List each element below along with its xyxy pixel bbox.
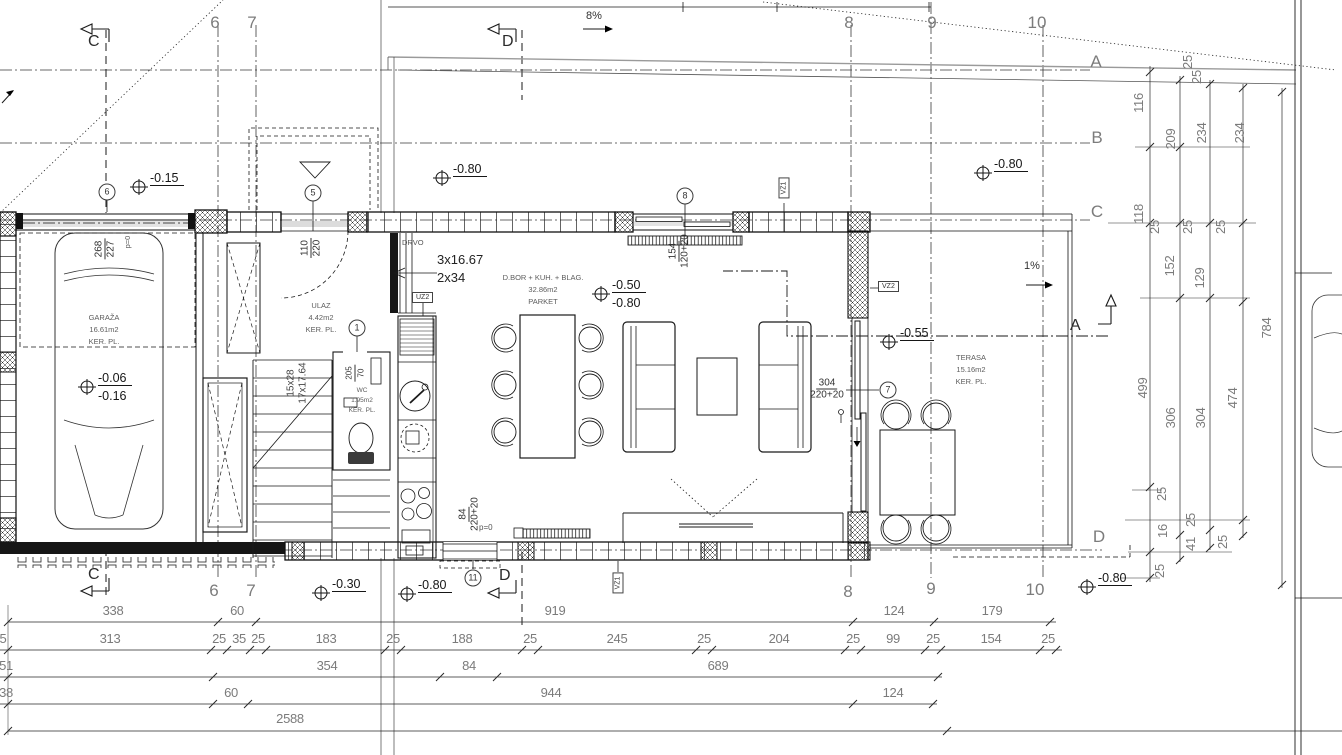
position-marker: 8	[677, 188, 694, 205]
window-dim-height: 120+20	[680, 234, 691, 268]
dimension-lines	[0, 66, 1342, 735]
room-area: 4.42m2	[306, 312, 337, 324]
room-area: 32.86m2	[503, 284, 584, 296]
p0-label-garage: p=0	[124, 236, 132, 249]
dimension-label-rotated: 304	[1194, 408, 1208, 429]
dimension-label: 25	[697, 632, 711, 646]
room-floor: KER. PL.	[306, 324, 337, 336]
tag-vz1: VZ1	[779, 178, 790, 199]
dimension-label: 35	[232, 632, 246, 646]
grid-axis-label: D	[1093, 528, 1105, 546]
room-label-garage: GARAŽA 16.61m2 KER. PL.	[89, 312, 120, 348]
door-dim-garage: 268 227	[94, 239, 117, 260]
dimension-label: 60	[230, 604, 244, 618]
door-dim-entry-width: 110	[300, 238, 312, 258]
grid-axis-label: 8	[843, 583, 852, 601]
grid-axis-label: 6	[209, 582, 218, 600]
section-marker-c-bottom: C	[88, 566, 100, 583]
dimension-label: 5	[0, 632, 6, 646]
p0-label-kitchen: p=0	[479, 524, 493, 532]
grid-axis-label: 8	[844, 14, 853, 32]
dimension-label: 99	[886, 632, 900, 646]
kitchen-opening-width: 84	[458, 506, 470, 521]
grid-axis-label: B	[1091, 129, 1102, 147]
dimension-label-rotated: 25	[1181, 220, 1195, 234]
dimension-label: 154	[981, 632, 1002, 646]
dimension-label-rotated: 209	[1164, 129, 1178, 150]
dimension-label: 689	[708, 659, 729, 673]
dimension-label: 25	[926, 632, 940, 646]
dimension-label-rotated: 129	[1193, 268, 1207, 289]
dimension-label: 179	[982, 604, 1003, 618]
room-floor: PARKET	[503, 296, 584, 308]
dimension-label: 25	[1041, 632, 1055, 646]
stair-note-risers: 3x16.67	[437, 253, 483, 267]
dimension-label: 2588	[276, 712, 304, 726]
level-value: -0.15	[150, 171, 184, 186]
dimension-label-rotated: 784	[1260, 318, 1274, 339]
tag-vz2: VZ2	[878, 281, 899, 292]
tag-vz1-bottom: VZ1	[613, 573, 624, 594]
dimension-label: 25	[846, 632, 860, 646]
dimension-label: 183	[316, 632, 337, 646]
dimension-label-rotated: 25	[1153, 564, 1167, 578]
grid-axis-label: 7	[246, 582, 255, 600]
dimension-label: 313	[100, 632, 121, 646]
dimension-label-rotated: 16	[1156, 524, 1170, 538]
section-marker-c-top: C	[88, 33, 100, 50]
grid-axis-label: 7	[247, 14, 256, 32]
room-name: WC	[349, 386, 376, 396]
level-value: -0.80	[453, 162, 487, 177]
door-dim-garage-height: 227	[106, 241, 117, 258]
room-floor: KER. PL.	[89, 336, 120, 348]
stair-flight-dim: 15x28	[286, 369, 297, 396]
dimension-label: 204	[769, 632, 790, 646]
material-label-wood: DRVO	[402, 239, 424, 247]
position-marker: 5	[305, 185, 322, 202]
section-marker-a: A	[1070, 317, 1081, 334]
dimension-label-rotated: 499	[1136, 378, 1150, 399]
door-dim-wc-width: 205	[344, 364, 356, 381]
room-label-entry: ULAZ 4.42m2 KER. PL.	[306, 300, 337, 336]
slider-dim: 304 220+20	[810, 378, 844, 401]
dimension-label-rotated: 234	[1233, 123, 1247, 144]
room-label-terrace: TERASA 15.16m2 KER. PL.	[956, 352, 987, 388]
level-value: -0.80	[612, 296, 641, 310]
interior	[203, 231, 436, 558]
level-value: -0.16	[98, 389, 127, 403]
slider-dim-width: 304	[817, 378, 838, 390]
grid-axis-label: 10	[1028, 14, 1047, 32]
room-label-wc: WC 1.95m2 KER. PL.	[349, 386, 376, 416]
room-area: 1.95m2	[349, 396, 376, 406]
dimension-label: 84	[462, 659, 476, 673]
door-dim-wc-height: 70	[356, 369, 367, 378]
grid-axis-label: 10	[1026, 581, 1045, 599]
dimension-label-rotated: 474	[1226, 388, 1240, 409]
dimension-label: 38	[0, 686, 13, 700]
dimension-label-rotated: 306	[1164, 408, 1178, 429]
level-value: -0.80	[418, 578, 452, 593]
room-area: 15.16m2	[956, 364, 987, 376]
dimension-label-rotated: 152	[1163, 256, 1177, 277]
dimension-label: 944	[541, 686, 562, 700]
dimension-label: 188	[452, 632, 473, 646]
kitchen-opening-height: 220+20	[470, 497, 481, 531]
floor-plan-sheet: C C D D A 8% 1% 3x16.67 2x34 15x28 17x17…	[0, 0, 1342, 755]
grid-axis-label: 9	[927, 14, 936, 32]
leaders	[107, 200, 879, 572]
position-marker: 7	[880, 382, 897, 399]
dimension-label-rotated: 118	[1132, 204, 1146, 224]
dimension-label: 245	[607, 632, 628, 646]
dimension-label: 25	[523, 632, 537, 646]
door-dim-wc: 205 70	[344, 364, 367, 381]
position-marker: 6	[99, 184, 116, 201]
furniture	[20, 128, 955, 544]
grid-axis-label: 6	[210, 14, 219, 32]
walls	[0, 210, 1130, 568]
stair-note-treads: 2x34	[437, 271, 465, 285]
level-value: -0.50	[612, 278, 646, 293]
section-lines	[81, 24, 1116, 625]
stair-flight-dim2: 17x17.64	[298, 362, 309, 403]
level-value: -0.55	[900, 326, 934, 341]
dimension-label-rotated: 25	[1216, 535, 1230, 549]
level-value: -0.06	[98, 371, 132, 386]
grid-axis-label: A	[1090, 53, 1101, 71]
window-dim-width: 154	[668, 241, 680, 262]
room-name: D.BOR + KUH. + BLAG.	[503, 272, 584, 284]
level-value: -0.30	[332, 577, 366, 592]
room-label-living: D.BOR + KUH. + BLAG. 32.86m2 PARKET	[503, 272, 584, 308]
dimension-label: 51	[0, 659, 13, 673]
level-value: -0.80	[994, 157, 1028, 172]
dimension-label: 354	[317, 659, 338, 673]
door-dim-entry-height: 220	[312, 240, 323, 257]
tag-uz2: UZ2	[412, 292, 433, 303]
room-name: ULAZ	[306, 300, 337, 312]
room-floor: KER. PL.	[349, 406, 376, 416]
section-marker-d-bottom: D	[499, 567, 511, 584]
door-dim-entry: 110 220	[300, 238, 323, 258]
room-name: TERASA	[956, 352, 987, 364]
grid-axis-label: 9	[926, 580, 935, 598]
position-marker: 1	[349, 320, 366, 337]
dimension-label: 25	[212, 632, 226, 646]
dimension-label: 124	[883, 686, 904, 700]
dimension-label: 338	[103, 604, 124, 618]
room-name: GARAŽA	[89, 312, 120, 324]
section-marker-d-top: D	[502, 33, 514, 50]
kitchen-opening-dim: 84 220+20	[458, 497, 481, 531]
dimension-label-rotated: 41	[1184, 537, 1198, 551]
dimension-label: 60	[224, 686, 238, 700]
dimension-label-rotated: 25	[1181, 55, 1195, 69]
dimension-label-rotated: 25	[1190, 70, 1204, 84]
room-area: 16.61m2	[89, 324, 120, 336]
dimension-label-rotated: 25	[1148, 220, 1162, 234]
level-value: -0.80	[1098, 571, 1132, 586]
dimension-label: 25	[386, 632, 400, 646]
door-dim-garage-width: 268	[94, 239, 106, 260]
slope-label-driveway: 8%	[586, 10, 602, 22]
position-marker: 11	[465, 570, 482, 587]
dimension-label: 919	[545, 604, 566, 618]
window-dim-top: 154 120+20	[668, 234, 691, 268]
dimension-label-rotated: 25	[1155, 487, 1169, 501]
grid-axis-label: C	[1091, 203, 1103, 221]
dimension-label-rotated: 25	[1214, 220, 1228, 234]
dimension-label: 25	[251, 632, 265, 646]
dimension-label-rotated: 234	[1195, 123, 1209, 144]
slider-dim-height: 220+20	[810, 390, 844, 401]
dimension-label: 124	[884, 604, 905, 618]
dimension-label-rotated: 25	[1184, 513, 1198, 527]
room-floor: KER. PL.	[956, 376, 987, 388]
dimension-label-rotated: 116	[1132, 93, 1146, 113]
slope-label-terrace: 1%	[1024, 260, 1040, 272]
